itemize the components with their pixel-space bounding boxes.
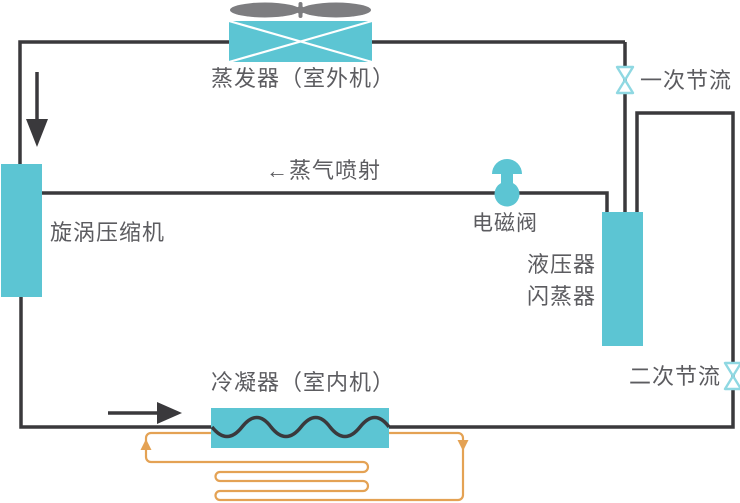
flow-arrow-down-icon — [26, 119, 48, 147]
pipe-vapor-injection — [42, 193, 607, 212]
solenoid-valve-icon — [492, 159, 522, 207]
flow-arrows — [26, 72, 182, 424]
flash-tank-block — [602, 212, 643, 346]
accumulator-label: 液压器 — [527, 252, 596, 278]
compressor-label: 旋涡压缩机 — [50, 220, 165, 246]
primary-throttle-valve-icon — [617, 67, 633, 93]
primary-throttle-label: 一次节流 — [640, 68, 732, 94]
compressor-block — [1, 164, 42, 297]
secondary-throttle-valve-icon — [725, 363, 740, 389]
flash-tank-label: 闪蒸器 — [527, 284, 596, 310]
evaporator-label: 蒸发器（室外机） — [211, 66, 395, 92]
secondary-throttle-label: 二次节流 — [629, 364, 721, 390]
condenser-label: 冷凝器（室内机） — [211, 370, 395, 396]
vapor-injection-label: ←蒸气喷射 — [266, 158, 381, 184]
pipe-bottom-left — [21, 297, 212, 427]
water-arrow-down-icon — [458, 440, 469, 451]
flow-arrow-right-icon — [157, 402, 182, 424]
heat-pump-diagram: 蒸发器（室外机） 一次节流 ←蒸气喷射 电磁阀 旋涡压缩机 液压器 闪蒸器 二次… — [0, 0, 740, 503]
water-arrow-up-icon — [141, 439, 152, 450]
solenoid-valve-label: 电磁阀 — [472, 212, 538, 237]
fan-icon — [230, 2, 371, 18]
